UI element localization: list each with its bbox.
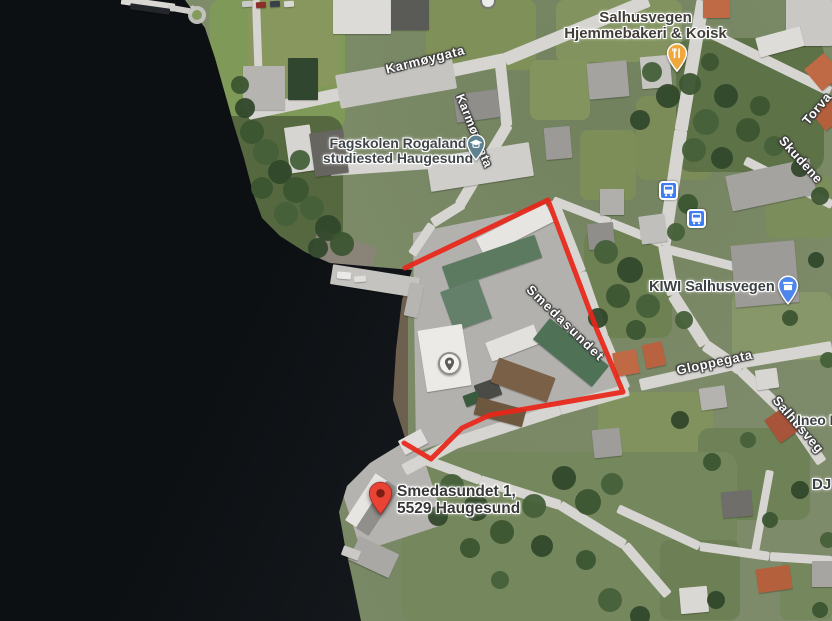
tree — [251, 177, 273, 199]
tree — [588, 308, 608, 328]
address-line2: 5529 Haugesund — [397, 500, 520, 517]
tree — [490, 520, 514, 544]
poi-label-fagskolen[interactable]: Fagskolen Rogaland studiested Haugesund — [323, 136, 473, 166]
tree — [675, 311, 693, 329]
poi-label-bakery-line1: Salhusvegen — [558, 10, 733, 26]
tree — [630, 110, 650, 130]
tree — [693, 109, 719, 135]
tree — [606, 284, 630, 308]
tree — [274, 202, 298, 226]
place-circle-icon[interactable] — [438, 352, 461, 375]
tree — [682, 138, 706, 162]
tree — [626, 320, 646, 340]
destination-pin-icon[interactable] — [368, 481, 393, 520]
tree — [598, 588, 622, 612]
tree — [594, 240, 618, 264]
satellite-map-canvas[interactable]: Karmøygata Karmøygata Smedasundet Gloppe… — [0, 0, 832, 621]
bus-stop-icon[interactable] — [659, 181, 678, 200]
tree — [707, 591, 725, 609]
poi-label-bakery-line2: Hjemmebakeri & Koisk — [558, 26, 733, 42]
poi-label-ineo[interactable]: Ineo H — [797, 413, 832, 428]
tree — [617, 257, 643, 283]
tree — [812, 602, 828, 618]
trees-layer — [0, 0, 832, 621]
tree — [576, 550, 596, 570]
tree — [791, 481, 809, 499]
tree — [736, 118, 760, 142]
tree — [782, 310, 798, 326]
tree — [192, 10, 202, 20]
tree — [811, 187, 829, 205]
school-pin-icon[interactable] — [466, 134, 486, 166]
tree — [235, 98, 255, 118]
tree — [531, 535, 553, 557]
poi-label-dj[interactable]: DJ — [812, 477, 831, 492]
tree — [714, 84, 738, 108]
tree — [290, 150, 310, 170]
poi-label-fagskolen-line1: Fagskolen Rogaland — [323, 136, 473, 151]
restaurant-pin-icon[interactable] — [666, 43, 688, 77]
poi-label-kiwi[interactable]: KIWI Salhusvegen — [649, 280, 775, 295]
tree — [671, 411, 689, 429]
tree — [308, 238, 328, 258]
tree — [522, 494, 546, 518]
tree — [667, 223, 685, 241]
tree — [642, 62, 662, 82]
address-label[interactable]: Smedasundet 1, 5529 Haugesund — [397, 483, 520, 517]
tree — [750, 96, 770, 116]
tree — [820, 352, 832, 368]
poi-label-bakery[interactable]: Salhusvegen Hjemmebakeri & Koisk — [558, 10, 733, 42]
tree — [491, 571, 509, 589]
tree — [711, 147, 733, 169]
address-line1: Smedasundet 1, — [397, 483, 520, 500]
tree — [740, 432, 756, 448]
tree — [636, 294, 660, 318]
tree — [808, 252, 824, 268]
grocery-pin-icon[interactable] — [777, 275, 799, 310]
poi-label-fagskolen-line2: studiested Haugesund — [323, 151, 473, 166]
tree — [231, 76, 249, 94]
tree — [762, 512, 778, 528]
tree — [460, 538, 480, 558]
tree — [552, 466, 576, 490]
tree — [656, 84, 680, 108]
tree — [703, 453, 721, 471]
bus-stop-icon[interactable] — [687, 209, 706, 228]
tree — [330, 232, 354, 256]
tree — [575, 489, 601, 515]
tree — [630, 606, 650, 621]
tree — [701, 53, 719, 71]
tree — [601, 473, 623, 495]
tree — [820, 532, 832, 548]
